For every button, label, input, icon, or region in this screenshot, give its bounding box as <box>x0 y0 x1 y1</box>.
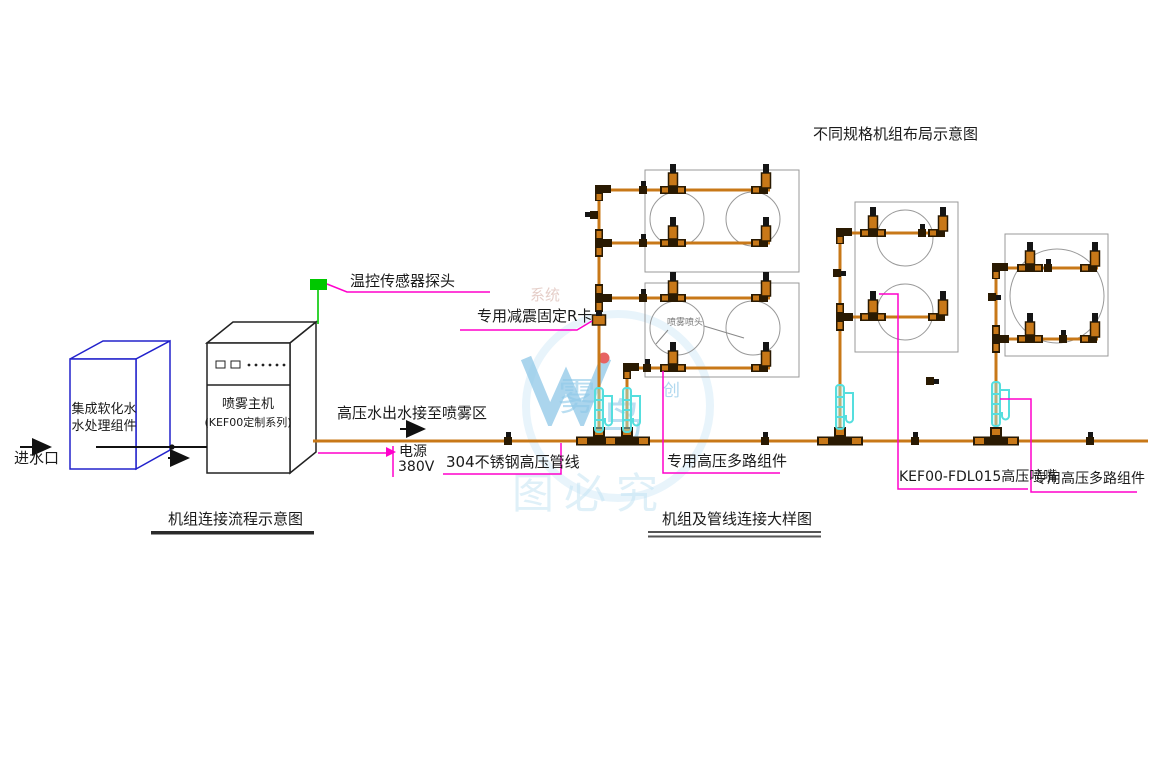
multiway-label-2: 专用高压多路组件 <box>1033 471 1145 487</box>
softener-label-line2: 水处理组件 <box>58 420 150 435</box>
outlet-note-label: 高压水出水接至喷雾区 <box>337 405 487 422</box>
spray-nozzle-small-label: 喷雾喷头 <box>667 318 703 328</box>
title-underlines <box>151 531 821 538</box>
temp-sensor-probe <box>310 279 327 324</box>
drawing-canvas: 雾 鸟 创 图必究 系统 <box>0 0 1158 775</box>
pipe-304-label: 304不锈钢高压管线 <box>446 454 580 471</box>
host-label-line1: 喷雾主机 <box>196 398 300 413</box>
host-label-line2: (KEF00定制系列) <box>190 417 306 430</box>
main-line-fittings <box>504 427 1094 446</box>
title-detail-diagram: 机组及管线连接大样图 <box>662 511 812 528</box>
power-label-line2: 380V <box>398 459 434 475</box>
vibration-r-clamp <box>593 311 606 325</box>
softener-label-line1: 集成软化水 <box>58 403 150 418</box>
temp-sensor-label: 温控传感器探头 <box>350 273 455 290</box>
title-layout-diagram: 不同规格机组布局示意图 <box>813 126 978 143</box>
unit-group-a <box>585 164 799 379</box>
piping-diagram <box>0 0 1158 775</box>
unit-group-c <box>988 234 1108 356</box>
water-inlet-label: 进水口 <box>14 450 59 467</box>
title-flow-diagram: 机组连接流程示意图 <box>168 511 303 528</box>
r-clamp-label: 专用减震固定R卡 <box>477 308 592 325</box>
power-label-line1: 电源 <box>399 444 427 460</box>
nozzle-assemblies <box>595 382 1009 432</box>
multiway-label-1: 专用高压多路组件 <box>667 453 787 470</box>
